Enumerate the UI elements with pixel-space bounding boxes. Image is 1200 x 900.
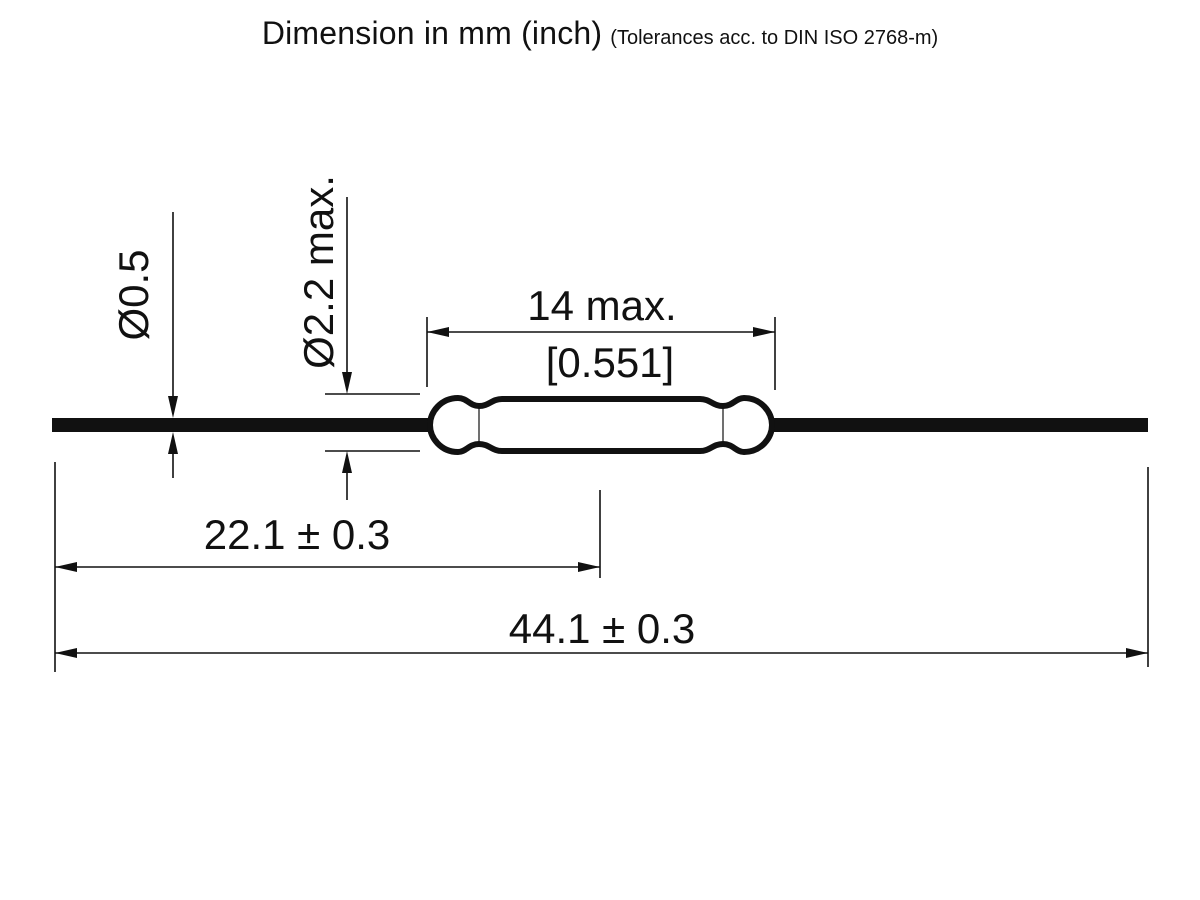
dim-glass-length: 14 max. [0.551] (427, 282, 775, 390)
arrow-up-icon (342, 451, 352, 473)
dim-lead-to-center: 22.1 ± 0.3 (55, 490, 600, 578)
arrow-right-icon (753, 327, 775, 337)
dim-glass-diameter: Ø2.2 max. (295, 175, 420, 500)
glass-body (430, 398, 772, 452)
arrow-right-icon (578, 562, 600, 572)
overall-length-label: 44.1 ± 0.3 (509, 605, 696, 652)
arrow-up-icon (168, 432, 178, 454)
glass-length-mm-label: 14 max. (527, 282, 676, 329)
arrow-left-icon (55, 648, 77, 658)
arrow-left-icon (55, 562, 77, 572)
dim-lead-diameter: Ø0.5 (110, 212, 178, 478)
reed-switch-dimension-drawing: Ø0.5 Ø2.2 max. 14 max. [0.551] 22.1 ± 0.… (0, 0, 1200, 900)
arrow-down-icon (168, 396, 178, 418)
glass-length-inch-label: [0.551] (546, 339, 674, 386)
arrow-left-icon (427, 327, 449, 337)
arrow-down-icon (342, 372, 352, 394)
lead-diameter-label: Ø0.5 (110, 249, 157, 340)
arrow-right-icon (1126, 648, 1148, 658)
lead-to-center-label: 22.1 ± 0.3 (204, 511, 391, 558)
glass-diameter-label: Ø2.2 max. (295, 175, 342, 369)
